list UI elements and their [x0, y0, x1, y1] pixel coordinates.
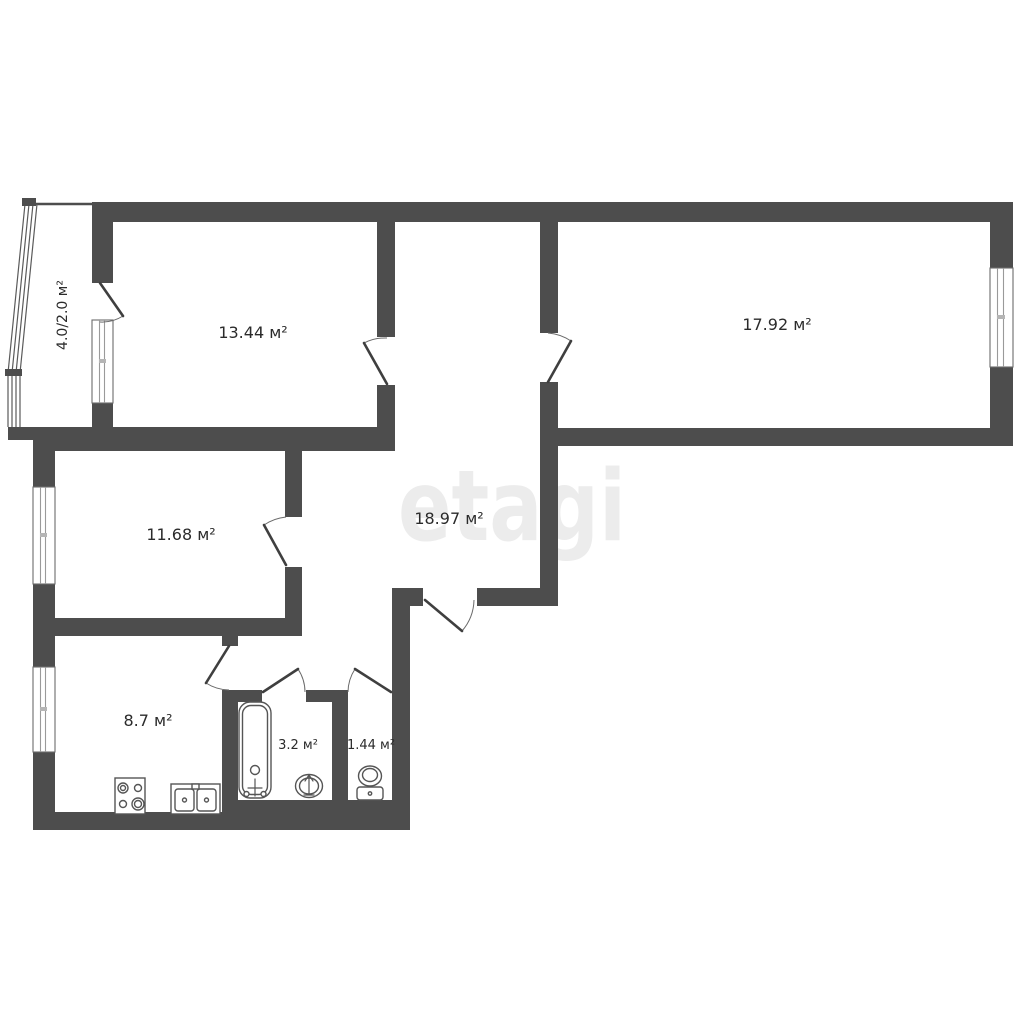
room-labels: 4.0/2.0 м² 13.44 м² 17.92 м² 11.68 м² 18…	[55, 280, 812, 753]
stove-icon	[115, 778, 145, 814]
door-icon-balcony	[100, 283, 123, 322]
bathtub-icon	[239, 702, 271, 798]
door-icon-room-top-left	[364, 338, 387, 384]
door-icon-entrance	[425, 600, 474, 631]
room-label-balcony: 4.0/2.0 м²	[55, 280, 71, 350]
room-label-room-top-right: 17.92 м²	[742, 315, 811, 334]
door-icon-bathroom	[263, 669, 305, 692]
floor-plan-page: etagi	[0, 0, 1024, 1024]
door-icon-kitchen	[206, 646, 229, 690]
window-icon-balcony-wall	[92, 320, 113, 403]
door-icon-room-top-right	[548, 333, 571, 382]
room-label-kitchen: 8.7 м²	[123, 711, 172, 730]
washbasin-icon	[296, 775, 323, 798]
window-icon-room-top-right	[990, 268, 1013, 367]
toilet-icon	[357, 766, 383, 800]
balcony-glazing	[5, 198, 92, 427]
floor-plan: etagi	[0, 0, 1024, 1024]
room-label-hallway: 18.97 м²	[414, 509, 483, 528]
window-icon-kitchen	[33, 667, 55, 752]
room-label-wc: 1.44 м²	[347, 738, 395, 753]
window-icon-room-mid-left	[33, 487, 55, 584]
door-icon-wc	[348, 669, 391, 692]
door-icon-room-mid-left	[264, 517, 286, 565]
watermark: etagi	[398, 450, 626, 564]
room-label-bathroom: 3.2 м²	[278, 738, 318, 753]
room-label-room-mid-left: 11.68 м²	[146, 525, 215, 544]
room-label-room-top-left: 13.44 м²	[218, 323, 287, 342]
kitchen-sink-icon	[171, 784, 220, 814]
